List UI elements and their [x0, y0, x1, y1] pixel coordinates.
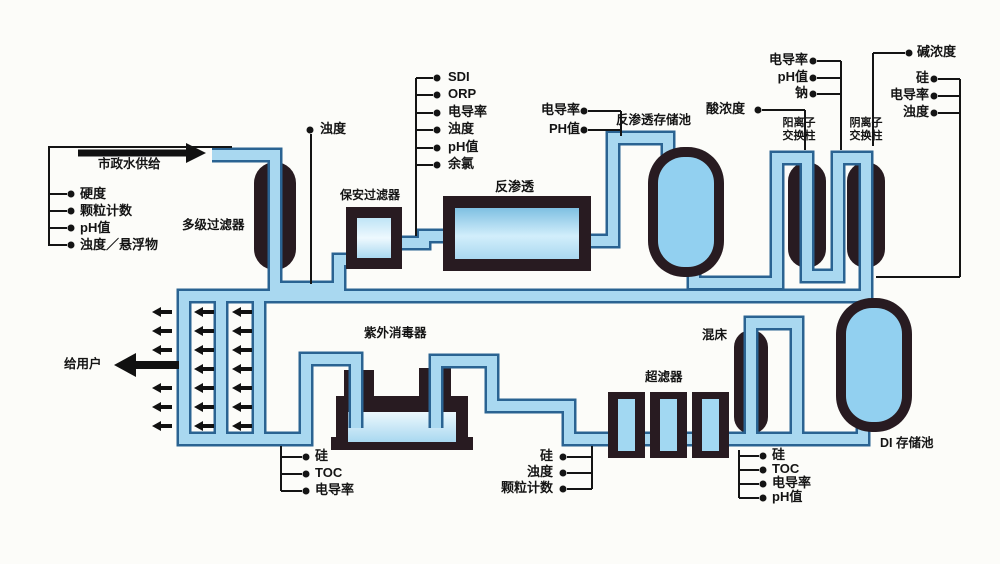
- water-treatment-flow-diagram: 市政水供给 硬度 颗粒计数 pH值 浊度／悬浮物 多级过滤器 浊度 保安过滤器 …: [0, 0, 1000, 564]
- to-users-arrow: [114, 353, 179, 377]
- diagram-canvas: [0, 0, 1000, 564]
- vessel-reverse-osmosis: [443, 196, 591, 271]
- vessel-security-filter: [346, 207, 402, 269]
- vessel-ultrafilter-modules: [608, 392, 729, 458]
- vessel-di-storage-tank: [836, 298, 912, 432]
- vessel-ro-storage-tank: [648, 147, 724, 277]
